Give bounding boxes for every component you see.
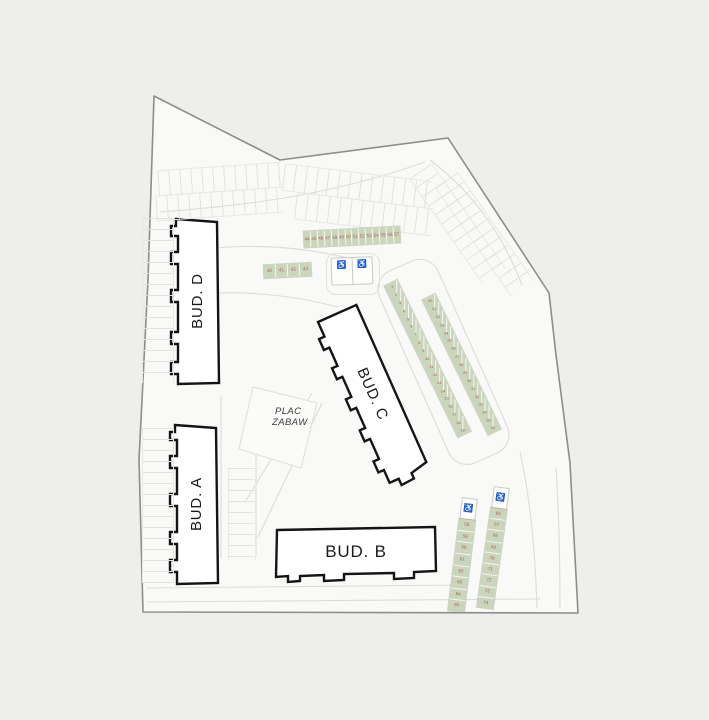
wheelchair-icon: ♿: [351, 257, 372, 284]
parking-bays-left-edge-1: [142, 218, 174, 383]
parking-bays-center: [228, 468, 256, 560]
parking-space-number: 41: [276, 264, 289, 278]
wheelchair-icon: ♿: [462, 498, 474, 519]
parking-space-number: 65: [448, 600, 465, 612]
parking-space-number: 19: [459, 423, 467, 437]
building-d-label: BUD. D: [189, 273, 206, 329]
parking-space-number: 42: [288, 263, 301, 277]
parking-space-number: 36: [489, 421, 497, 435]
building-b-label: BUD. B: [325, 542, 386, 561]
parking-space-number: 74: [477, 597, 494, 609]
parking-space-number: 40: [264, 265, 277, 279]
building-a-label: BUD. A: [188, 477, 205, 531]
accessible-parking-pair: ♿ ♿: [331, 256, 374, 285]
accessible-bay-box: ♿: [459, 497, 478, 521]
parking-bays-left-edge-2: [142, 428, 174, 583]
playground-label: PLAC ZABAW: [272, 406, 308, 428]
parking-strip-small: 40414243: [264, 263, 312, 278]
parking-space-number: 57: [394, 227, 401, 243]
parking-space-number: 43: [300, 263, 312, 277]
site-plan-canvas: BUD. D BUD. A BUD. C BUD. B: [0, 0, 709, 720]
accessible-bay-box: ♿: [491, 486, 510, 510]
playground-label-line1: PLAC: [275, 406, 308, 417]
wheelchair-icon: ♿: [332, 258, 352, 285]
wheelchair-icon: ♿: [494, 487, 507, 508]
site-plan: BUD. D BUD. A BUD. C BUD. B 444546474849…: [0, 0, 709, 720]
playground-label-line2: ZABAW: [272, 417, 308, 428]
